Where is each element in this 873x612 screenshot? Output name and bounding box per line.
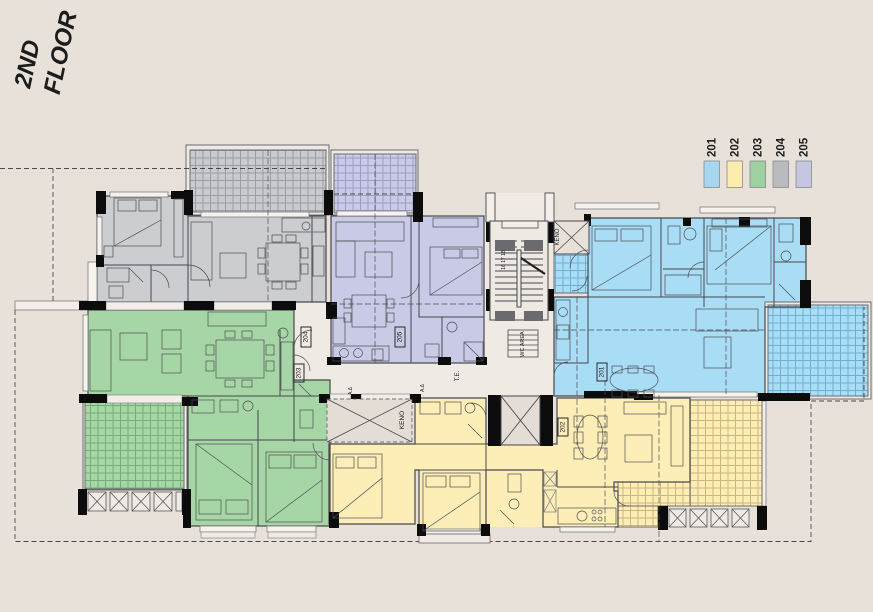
svg-text:204: 204: [303, 331, 310, 342]
svg-text:201: 201: [599, 366, 606, 377]
svg-text:205: 205: [397, 331, 404, 342]
svg-text:KENO: KENO: [399, 411, 406, 429]
svg-text:203: 203: [296, 367, 303, 378]
svg-text:A.Δ: A.Δ: [348, 386, 354, 395]
svg-text:202: 202: [560, 421, 567, 432]
svg-text:WC AREA: WC AREA: [520, 331, 526, 357]
svg-text:205: 205: [799, 137, 811, 157]
svg-text:204: 204: [776, 137, 788, 157]
svg-text:KENO: KENO: [555, 228, 561, 245]
svg-text:16 17 18: 16 17 18: [501, 250, 507, 270]
svg-text:203: 203: [753, 138, 765, 157]
svg-text:T.E.: T.E.: [455, 371, 461, 382]
svg-text:202: 202: [730, 138, 742, 157]
svg-text:A.Δ: A.Δ: [420, 383, 426, 392]
svg-text:201: 201: [707, 137, 719, 157]
